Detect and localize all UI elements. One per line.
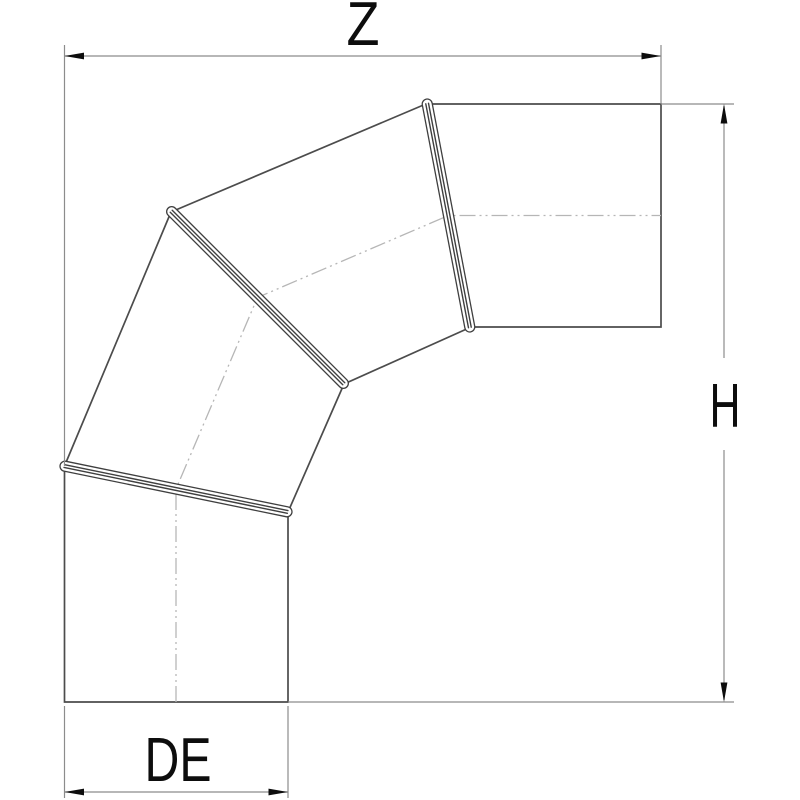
z-arrow-left: [65, 53, 85, 60]
z-arrow-right: [642, 53, 662, 60]
dimension-z: Z: [65, 0, 662, 466]
seam-bead-outline: [165, 205, 351, 391]
de-arrow-left: [65, 789, 85, 796]
de-arrow-right: [269, 789, 289, 796]
de-dimension-label: DE: [145, 726, 212, 795]
h-arrow-bottom: [721, 683, 728, 703]
h-dimension-label: H: [710, 372, 741, 441]
seam-joint-middle: [165, 205, 351, 391]
technical-drawing-canvas: Z H DE: [0, 0, 800, 800]
h-arrow-top: [721, 104, 728, 124]
pipe-outline: [65, 104, 662, 703]
pipe-segment-upper-middle: [171, 104, 470, 385]
dimension-de: DE: [65, 706, 289, 798]
dimension-h: H: [288, 104, 741, 702]
pipe-segment-lower-middle: [65, 212, 345, 512]
pipe-elbow-drawing: Z H DE: [0, 0, 800, 800]
z-dimension-label: Z: [347, 0, 380, 59]
